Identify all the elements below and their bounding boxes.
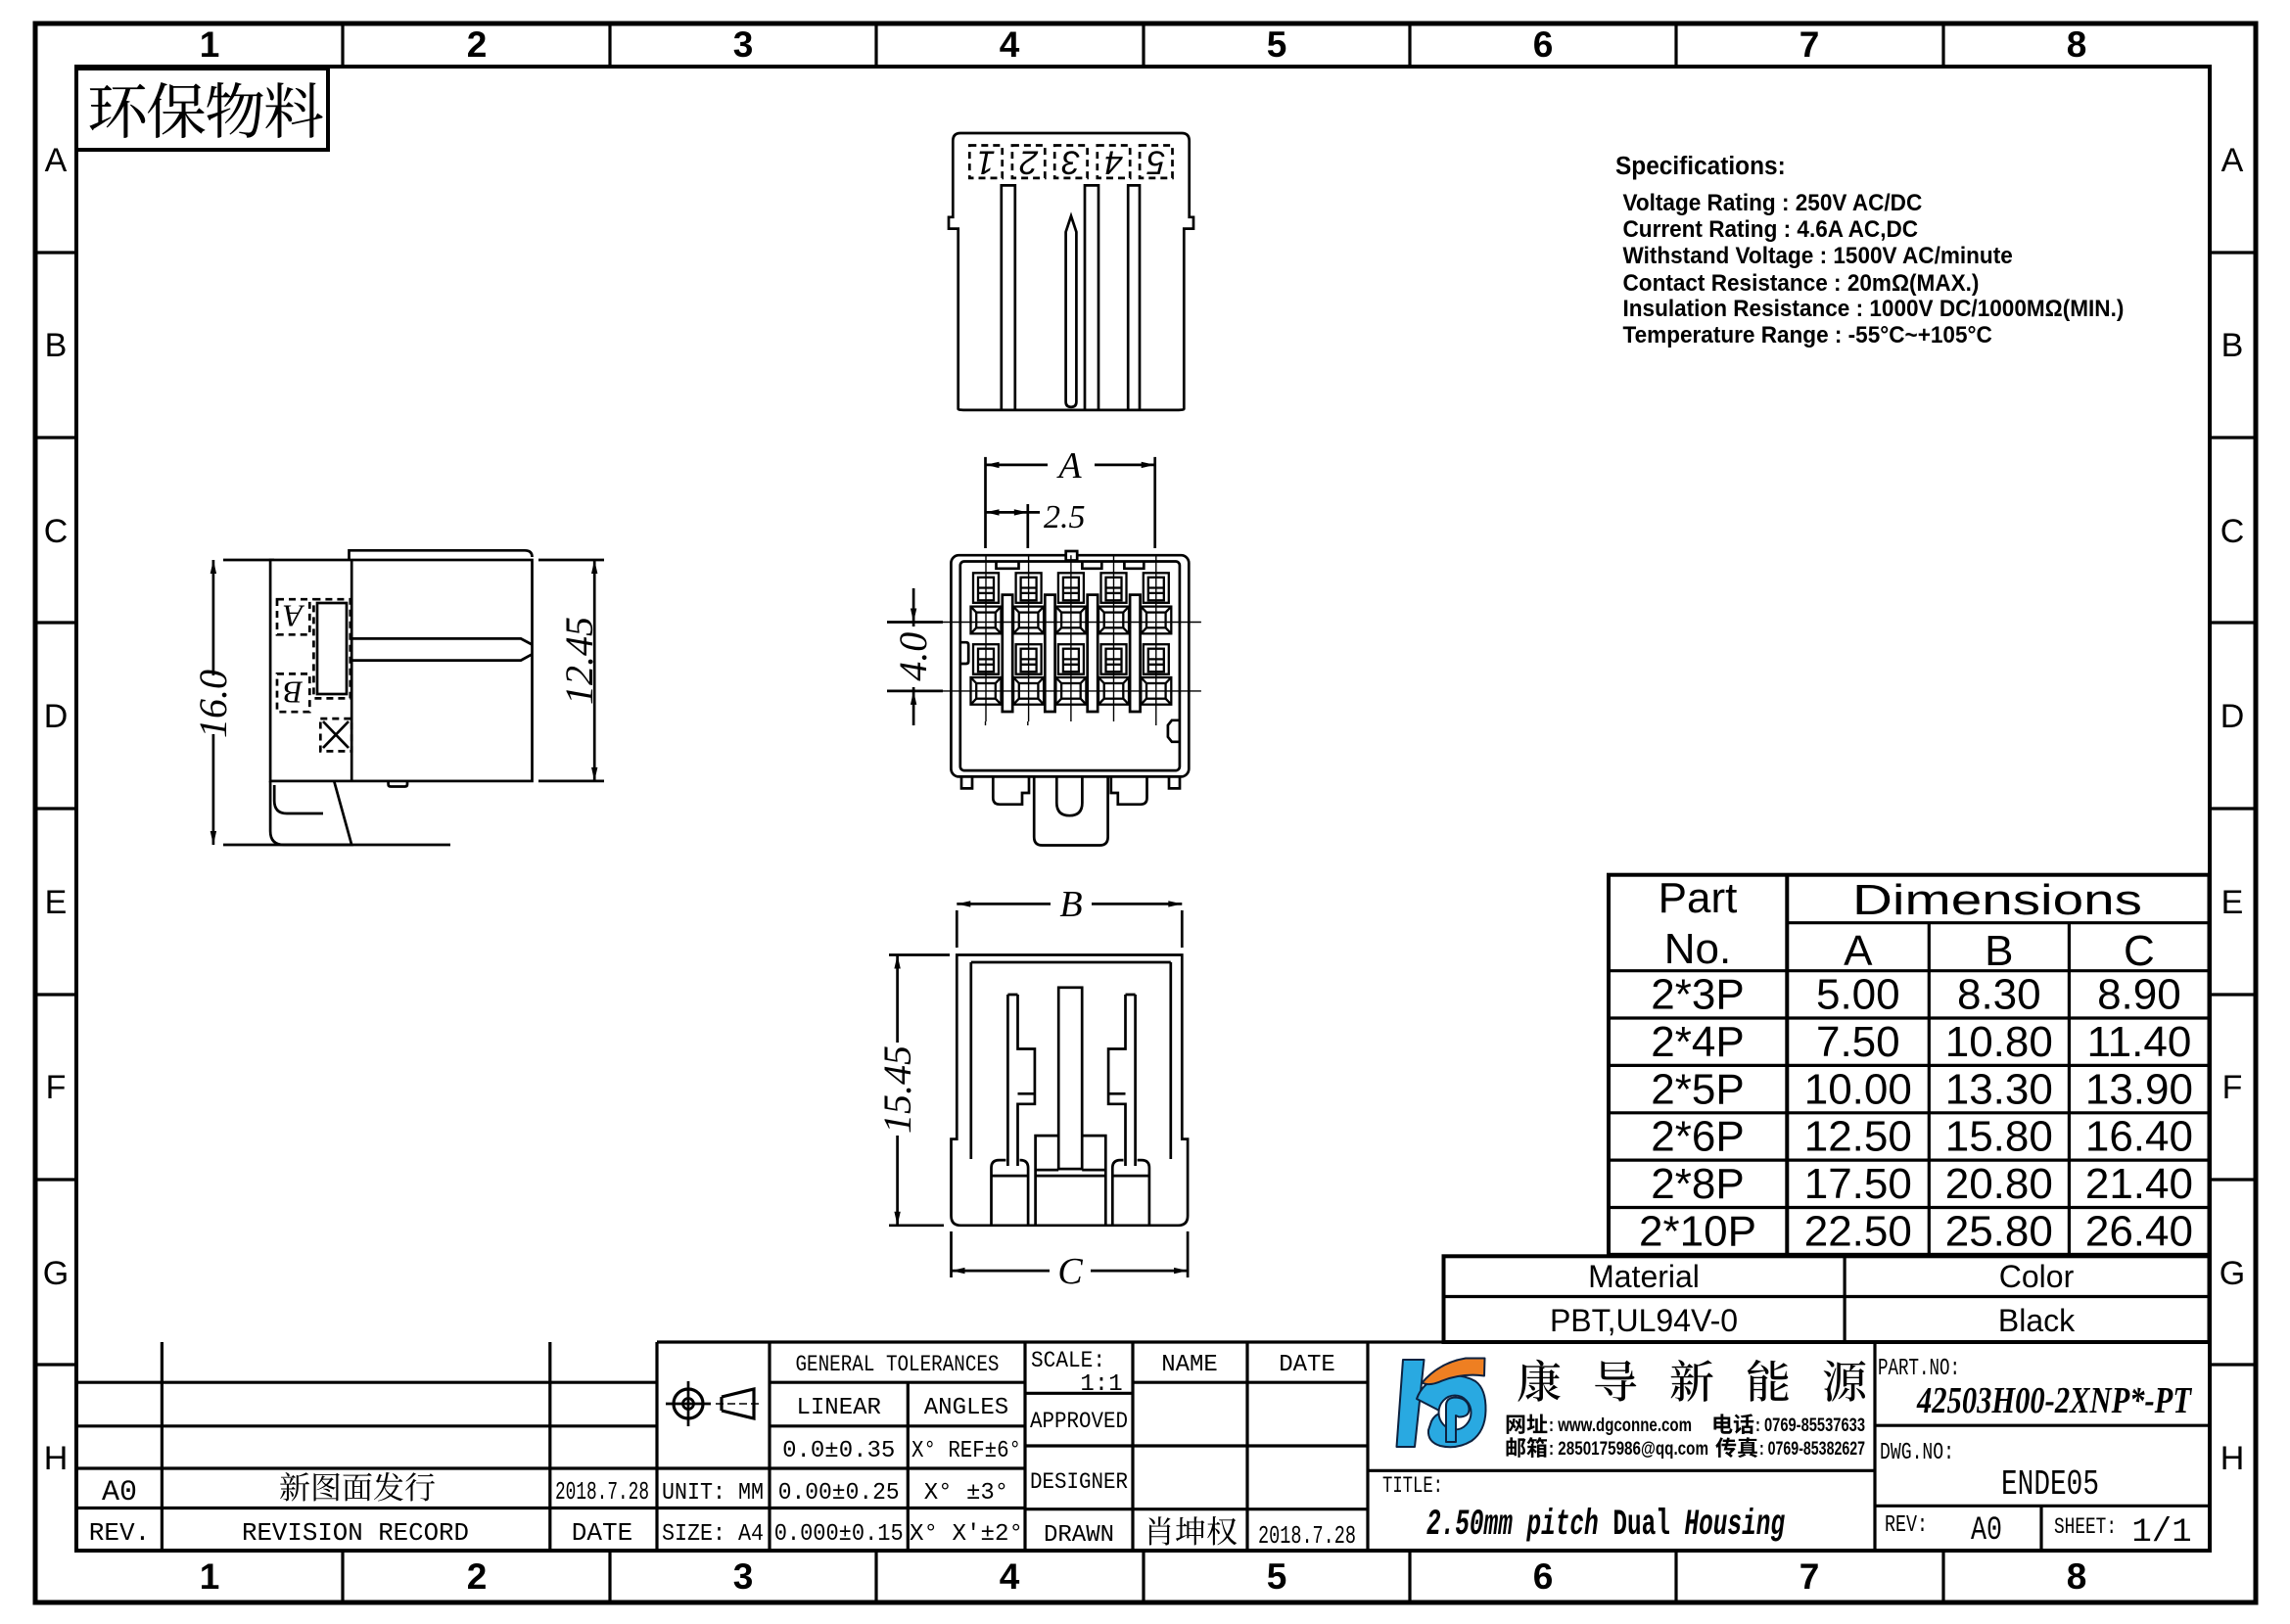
svg-text:2*8P: 2*8P — [1651, 1160, 1744, 1208]
svg-text:E: E — [45, 884, 68, 921]
svg-text:2018.7.28: 2018.7.28 — [555, 1477, 649, 1507]
svg-text:X° ±3°: X° ±3° — [924, 1480, 1008, 1507]
svg-text:ENDE05: ENDE05 — [2001, 1464, 2099, 1505]
svg-text:C: C — [44, 513, 69, 550]
svg-text:C: C — [2220, 513, 2245, 550]
svg-text:25.80: 25.80 — [1945, 1207, 2053, 1255]
svg-text:5: 5 — [1267, 1556, 1287, 1597]
svg-text:E: E — [2221, 884, 2244, 921]
svg-text:: 2850175986@qq.com: : 2850175986@qq.com — [1549, 1439, 1708, 1460]
svg-text:0.00±0.25: 0.00±0.25 — [778, 1480, 900, 1507]
svg-text:A: A — [283, 598, 304, 633]
svg-text:Voltage Rating : 250V AC/DC: Voltage Rating : 250V AC/DC — [1623, 189, 1923, 215]
svg-text:13.90: 13.90 — [2085, 1065, 2193, 1113]
svg-text:GENERAL TOLERANCES: GENERAL TOLERANCES — [796, 1352, 1000, 1377]
svg-text:2.50mm pitch Dual Housing: 2.50mm pitch Dual Housing — [1426, 1505, 1786, 1546]
svg-text:4: 4 — [1104, 143, 1123, 180]
svg-text:Dimensions: Dimensions — [1852, 876, 2142, 924]
svg-text:C: C — [2124, 927, 2155, 975]
svg-text:DATE: DATE — [572, 1518, 632, 1548]
svg-text:C: C — [1057, 1251, 1083, 1292]
svg-text:1: 1 — [200, 24, 220, 65]
svg-text:REV.: REV. — [89, 1518, 150, 1548]
svg-text:4.0: 4.0 — [891, 632, 935, 681]
svg-text:5: 5 — [1146, 143, 1165, 180]
svg-text:REVISION RECORD: REVISION RECORD — [242, 1518, 469, 1548]
svg-text:3: 3 — [733, 1556, 754, 1597]
svg-text:12.50: 12.50 — [1804, 1113, 1912, 1161]
svg-text:UNIT: MM: UNIT: MM — [662, 1480, 764, 1507]
svg-text:A: A — [2221, 142, 2244, 179]
svg-text:0.0±0.35: 0.0±0.35 — [782, 1438, 895, 1464]
svg-text:B: B — [1985, 927, 2013, 975]
svg-text:0.000±0.15: 0.000±0.15 — [774, 1521, 904, 1548]
svg-text:SHEET:: SHEET: — [2054, 1514, 2117, 1540]
svg-text:5: 5 — [1267, 24, 1287, 65]
svg-text:5.00: 5.00 — [1816, 971, 1900, 1019]
svg-text:Contact Resistance : 20mΩ(MAX.: Contact Resistance : 20mΩ(MAX.) — [1623, 269, 1980, 296]
svg-text:A0: A0 — [1971, 1512, 2002, 1550]
svg-text:REV:: REV: — [1885, 1512, 1928, 1539]
svg-text:TITLE:: TITLE: — [1382, 1473, 1443, 1499]
svg-text:1: 1 — [200, 1556, 220, 1597]
svg-text:LINEAR: LINEAR — [796, 1395, 880, 1421]
svg-text:No.: No. — [1664, 925, 1731, 973]
svg-text:17.50: 17.50 — [1804, 1160, 1912, 1208]
svg-text:X° REF±6°: X° REF±6° — [911, 1438, 1021, 1464]
svg-text:2*6P: 2*6P — [1651, 1113, 1744, 1161]
svg-text:2*5P: 2*5P — [1651, 1065, 1744, 1113]
svg-text:1:1: 1:1 — [1080, 1371, 1122, 1398]
svg-text:APPROVED: APPROVED — [1030, 1409, 1128, 1434]
svg-text:7: 7 — [1799, 24, 1820, 65]
svg-text:8: 8 — [2067, 1556, 2087, 1597]
svg-text:Black: Black — [1998, 1303, 2076, 1338]
svg-text:2*4P: 2*4P — [1651, 1018, 1744, 1066]
svg-text:A: A — [45, 142, 68, 179]
svg-text:B: B — [284, 675, 304, 711]
svg-text:DESIGNER: DESIGNER — [1030, 1469, 1128, 1495]
svg-text:G: G — [43, 1255, 69, 1292]
svg-text:A: A — [1844, 927, 1873, 975]
svg-text:16.40: 16.40 — [2085, 1113, 2193, 1161]
svg-text:PBT,UL94V-0: PBT,UL94V-0 — [1550, 1303, 1738, 1338]
svg-text:2: 2 — [467, 24, 488, 65]
svg-text:B: B — [1059, 884, 1082, 925]
svg-text:22.50: 22.50 — [1804, 1207, 1912, 1255]
svg-text:B: B — [2221, 327, 2244, 364]
svg-text:X° X'±2°: X° X'±2° — [910, 1521, 1023, 1548]
svg-text:42503H00-2XNP*-PT: 42503H00-2XNP*-PT — [1916, 1380, 2192, 1421]
svg-text:Color: Color — [1999, 1259, 2075, 1294]
svg-text:7.50: 7.50 — [1816, 1018, 1900, 1066]
svg-text:PART.NO:: PART.NO: — [1878, 1356, 1960, 1382]
svg-text:D: D — [44, 698, 69, 735]
svg-text:16.0: 16.0 — [191, 670, 235, 738]
svg-text:A: A — [1055, 445, 1082, 487]
svg-text:D: D — [2220, 698, 2245, 735]
svg-text:B: B — [45, 327, 68, 364]
svg-text:DRAWN: DRAWN — [1044, 1522, 1114, 1549]
svg-text:8.90: 8.90 — [2097, 971, 2181, 1019]
svg-text:1/1: 1/1 — [2131, 1514, 2191, 1552]
svg-text:A0: A0 — [102, 1476, 137, 1509]
svg-text:NAME: NAME — [1161, 1352, 1218, 1378]
svg-text:2*10P: 2*10P — [1639, 1207, 1756, 1255]
svg-text:1: 1 — [977, 143, 996, 180]
svg-text:Part: Part — [1659, 874, 1738, 922]
svg-text:10.00: 10.00 — [1804, 1065, 1912, 1113]
svg-text:DWG.NO:: DWG.NO: — [1880, 1440, 1954, 1466]
svg-text:2*3P: 2*3P — [1651, 971, 1744, 1019]
svg-text:6: 6 — [1533, 24, 1554, 65]
svg-text:2018.7.28: 2018.7.28 — [1258, 1521, 1356, 1551]
svg-text:SIZE: A4: SIZE: A4 — [662, 1521, 764, 1548]
svg-text:8.30: 8.30 — [1957, 971, 2041, 1019]
svg-text:15.80: 15.80 — [1945, 1113, 2053, 1161]
svg-text:15.45: 15.45 — [875, 1045, 919, 1134]
svg-text:Temperature Range : -55°C~+105: Temperature Range : -55°C~+105°C — [1623, 321, 1992, 348]
svg-text:Current Rating : 4.6A AC,DC: Current Rating : 4.6A AC,DC — [1623, 215, 1919, 242]
svg-text:Material: Material — [1588, 1259, 1700, 1294]
svg-text:11.40: 11.40 — [2086, 1018, 2191, 1066]
svg-text:DATE: DATE — [1279, 1352, 1335, 1378]
svg-text:26.40: 26.40 — [2085, 1207, 2193, 1255]
svg-text:Withstand Voltage : 1500V AC/m: Withstand Voltage : 1500V AC/minute — [1623, 242, 2013, 268]
svg-text:: 0769-85537633: : 0769-85537633 — [1755, 1415, 1865, 1436]
svg-text:13.30: 13.30 — [1945, 1065, 2053, 1113]
svg-text:8: 8 — [2067, 24, 2087, 65]
svg-text:H: H — [2220, 1440, 2245, 1477]
svg-text:6: 6 — [1533, 1556, 1554, 1597]
svg-text:20.80: 20.80 — [1945, 1160, 2053, 1208]
svg-text:SCALE:: SCALE: — [1031, 1348, 1105, 1373]
svg-text:4: 4 — [1000, 1556, 1020, 1597]
svg-text:: 0769-85382627: : 0769-85382627 — [1759, 1439, 1865, 1460]
svg-text:H: H — [44, 1440, 69, 1477]
svg-text:10.80: 10.80 — [1945, 1018, 2053, 1066]
svg-text:Insulation Resistance : 1000V: Insulation Resistance : 1000V DC/1000MΩ(… — [1623, 295, 2125, 321]
svg-text:ANGLES: ANGLES — [924, 1395, 1008, 1421]
svg-text:3: 3 — [733, 24, 754, 65]
svg-text:21.40: 21.40 — [2085, 1160, 2193, 1208]
svg-text:2.5: 2.5 — [1044, 499, 1086, 535]
svg-text:7: 7 — [1799, 1556, 1820, 1597]
svg-text:: www.dgconne.com: : www.dgconne.com — [1549, 1415, 1692, 1436]
svg-text:G: G — [2220, 1255, 2245, 1292]
svg-text:3: 3 — [1061, 143, 1080, 180]
svg-text:2: 2 — [1019, 143, 1039, 180]
svg-text:F: F — [46, 1069, 67, 1106]
svg-text:4: 4 — [1000, 24, 1020, 65]
svg-text:2: 2 — [467, 1556, 488, 1597]
svg-text:12.45: 12.45 — [557, 617, 601, 705]
svg-text:Specifications:: Specifications: — [1615, 152, 1786, 180]
svg-text:F: F — [2222, 1069, 2243, 1106]
